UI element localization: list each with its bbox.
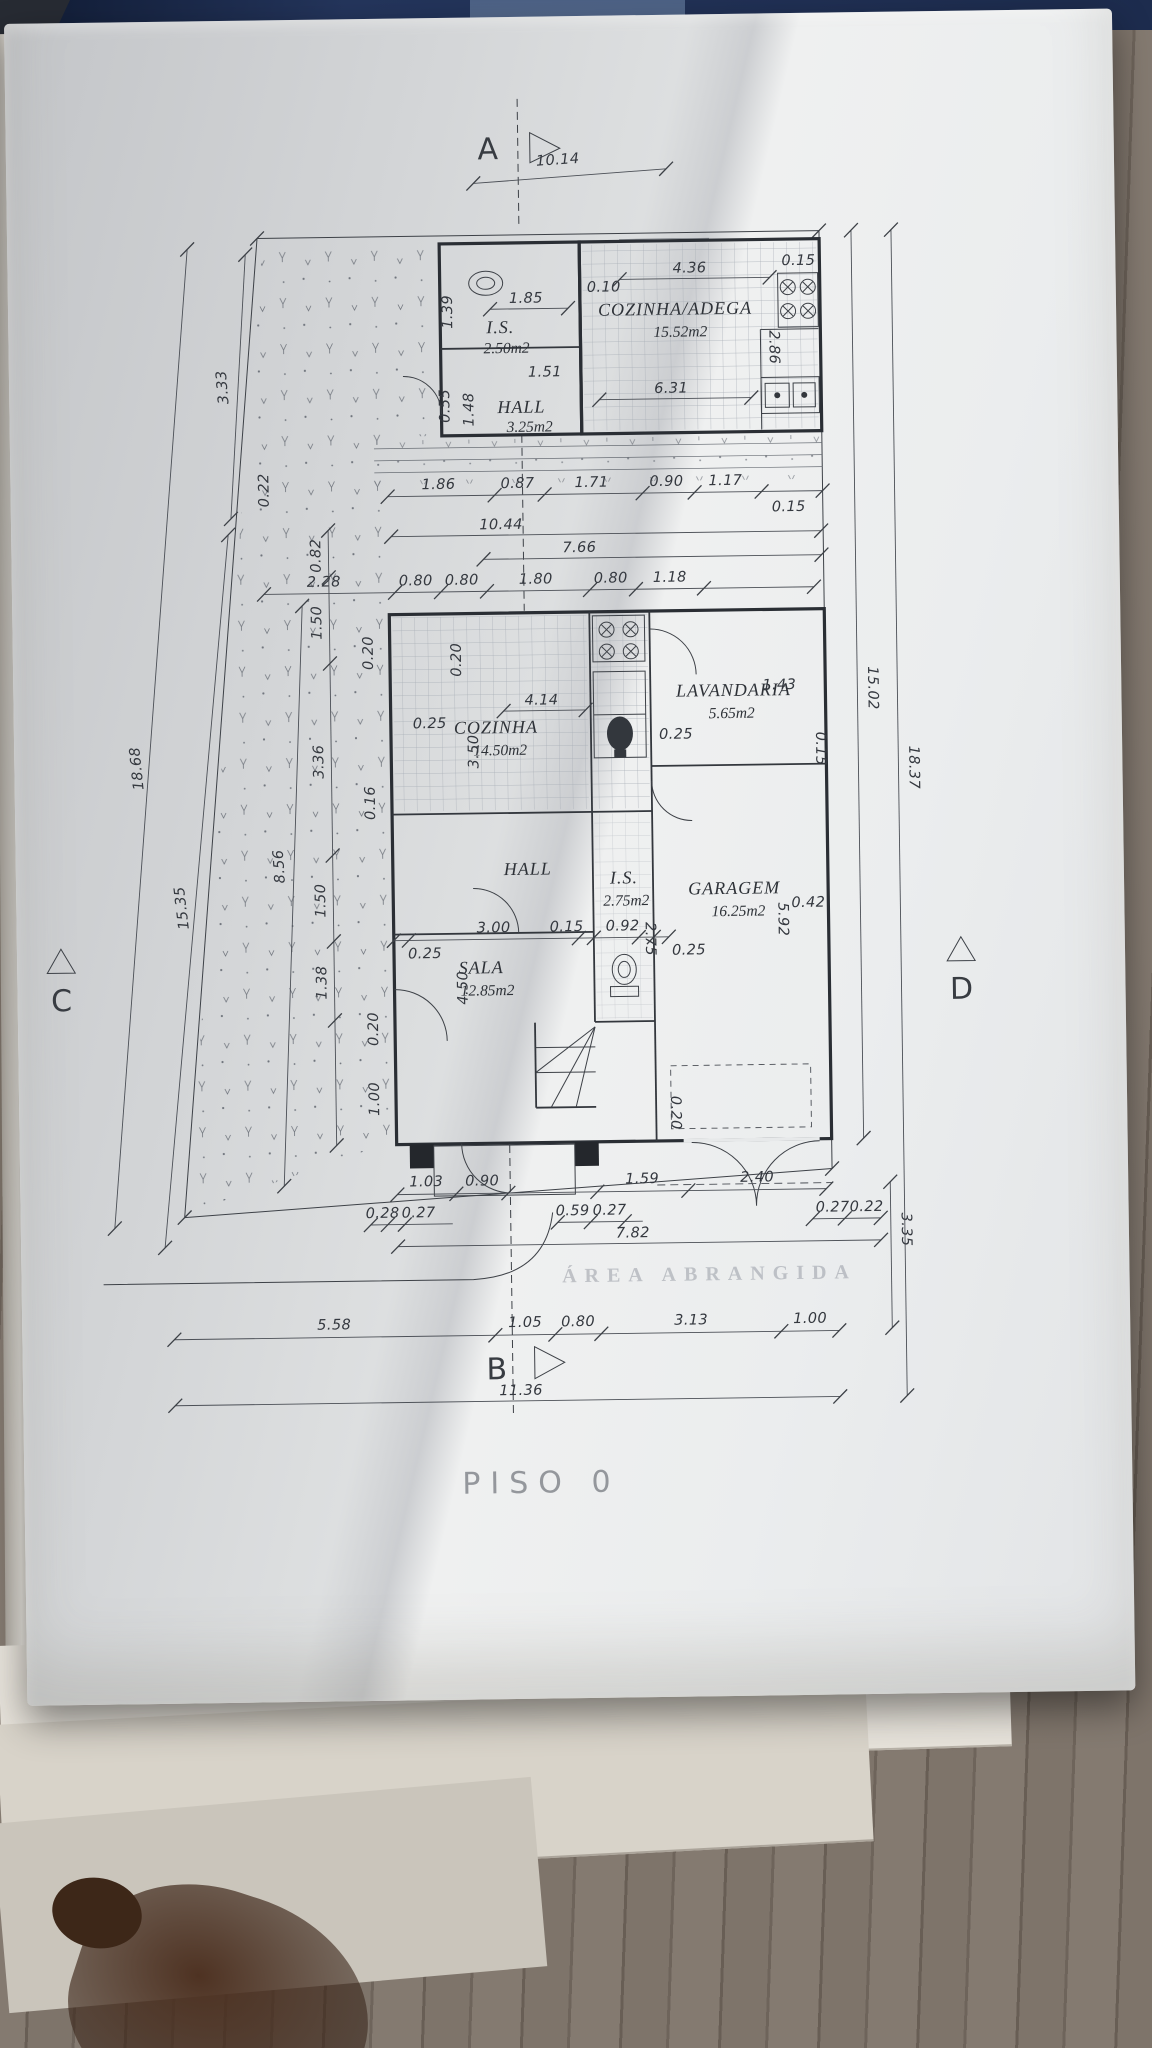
dim-label: 1.80 [519,571,553,587]
section-marker-b: B [486,1352,507,1387]
dim-label: 1.71 [574,475,608,491]
page-title: PISO 0 [462,1465,621,1502]
dim-label: 2.75 [642,922,658,956]
dim-label: 1.03 [409,1174,443,1190]
right-dimensions: 15.02 18.37 [844,222,930,1403]
bottom-dimensions: 1.03 0.90 1.59 2.40 0.28 0.27 0.59 0.27 … [363,1167,915,1342]
dim-label: 0.27 [593,1202,627,1218]
dim-label: 0.25 [672,942,706,958]
dim-label: 3.13 [674,1312,708,1328]
dim-label: 0.27 [402,1205,436,1221]
dim-label: 4.14 [524,692,558,708]
dim-label: 1.48 [461,392,477,426]
dim-label: 0.16 [363,786,379,820]
dim-label: 1.39 [440,295,456,329]
dim-label: 1.05 [508,1315,542,1331]
dim-label: 11.36 [499,1383,543,1400]
room-area: 16.25m2 [711,902,765,920]
dim-label: 0.20 [366,1012,382,1046]
dim-label: 3.00 [477,920,511,936]
dim-label: 0.80 [561,1314,595,1330]
section-marker-c: C [51,984,72,1019]
dim-label: 18.68 [127,746,147,791]
section-marker-a: A [477,132,498,167]
dim-label: 1.85 [509,291,543,307]
room-area: 2.50m2 [483,340,530,358]
room-label: COZINHA/ADEGA [598,298,752,320]
room-area: 3.25m2 [506,418,554,436]
room-label: COZINHA [454,717,538,738]
photo-scene: A 10.14 [0,0,1152,2048]
room-area: 15.52m2 [653,323,707,341]
dim-label: 10.14 [536,151,580,170]
room-label: I.S. [485,317,514,337]
dim-label: 3.36 [311,745,327,779]
room-label: I.S. [609,867,638,887]
room-label: HALL [503,858,552,879]
dim-label: 2.40 [740,1169,774,1185]
dim-label: 3.33 [214,370,233,405]
dim-label: 1.38 [314,966,330,1000]
dim-label: 4.36 [672,260,706,276]
dim-label: 1.17 [708,473,742,489]
dim-label: 0.87 [500,476,534,492]
dim-label: 0.22 [256,473,272,507]
dim-label: 5.92 [774,902,790,936]
dim-label: 0.42 [791,895,825,911]
stairs [535,1027,596,1108]
sala-room: SALA 12.85m2 4.50 [394,957,515,1042]
room-area: 2.75m2 [603,892,650,910]
dim-label: 0.20 [361,636,377,670]
dim-label: 1.00 [367,1082,383,1116]
dim-label: 1.86 [421,477,455,493]
dim-label: 0.25 [408,946,442,962]
dim-label: 4.50 [455,971,471,1005]
dim-label: 0.10 [587,279,621,295]
dim-label: 0.20 [667,1096,683,1130]
dim-label: 10.44 [479,517,523,534]
dim-label: 0.59 [556,1203,590,1219]
dim-label: 5.58 [317,1317,351,1333]
dim-label: 2.86 [765,330,781,364]
room-label: HALL [496,396,545,417]
dim-label: 1.51 [528,364,562,380]
section-marker-c-group: C [47,949,76,1019]
floor-plan-drawing: A 10.14 [17,75,1097,1530]
bleed-through-text: ÁREA ABRANGIDA [562,1260,857,1287]
dim-label: 0.90 [649,474,683,490]
dim-label: 15.35 [172,885,193,930]
dim-label: 0.92 [606,918,640,934]
room-area: 5.65m2 [709,705,756,723]
lavandaria-room: LAVANDARIA 5.65m2 1.43 0.25 0.15 [650,627,829,768]
dim-label: 0.25 [413,716,447,732]
dim-label: 6.31 [654,380,688,396]
dim-label: 0.80 [445,572,479,588]
dim-label: 0.55 [437,389,453,423]
dim-label: 1.00 [793,1311,827,1327]
dim-label: 0.15 [772,499,806,515]
dim-label: 3.50 [466,734,482,768]
dim-label: 1.43 [762,677,796,693]
dim-label: 1.59 [625,1171,659,1187]
dim-label: 0.25 [659,726,693,742]
dim-label: 7.66 [562,540,596,556]
dim-label: 0.82 [308,539,324,573]
dim-label: 1.50 [313,884,329,918]
dim-label: 8.56 [271,849,289,884]
hall-and-wc: HALL I.S. 2.75m2 2.75 0.25 3.00 0.15 0.9… [386,856,707,999]
section-marker-d: D [950,972,974,1007]
dim-label: 0.28 [366,1206,400,1222]
dim-label: 15.02 [864,666,881,710]
dim-label: 3.35 [898,1212,914,1246]
dim-label: 0.27 [816,1199,850,1215]
dim-label: 1.50 [309,606,325,640]
dim-label: 0.80 [594,570,628,586]
dim-label: 0.15 [781,253,815,269]
dim-label: 0.80 [399,573,433,589]
dim-label: 18.37 [905,746,922,790]
dim-label: 0.15 [812,732,828,766]
dim-label: 7.82 [616,1225,650,1241]
dim-label: 0.90 [465,1173,499,1189]
dim-label: 0.20 [449,643,465,677]
dim-label: 0.22 [850,1199,884,1215]
paper-sheet: A 10.14 [4,9,1135,1706]
dim-label: 0.15 [550,919,584,935]
section-marker-d-group: D [947,937,976,1007]
room-label: GARAGEM [688,877,780,898]
dim-label: 1.18 [653,570,687,586]
